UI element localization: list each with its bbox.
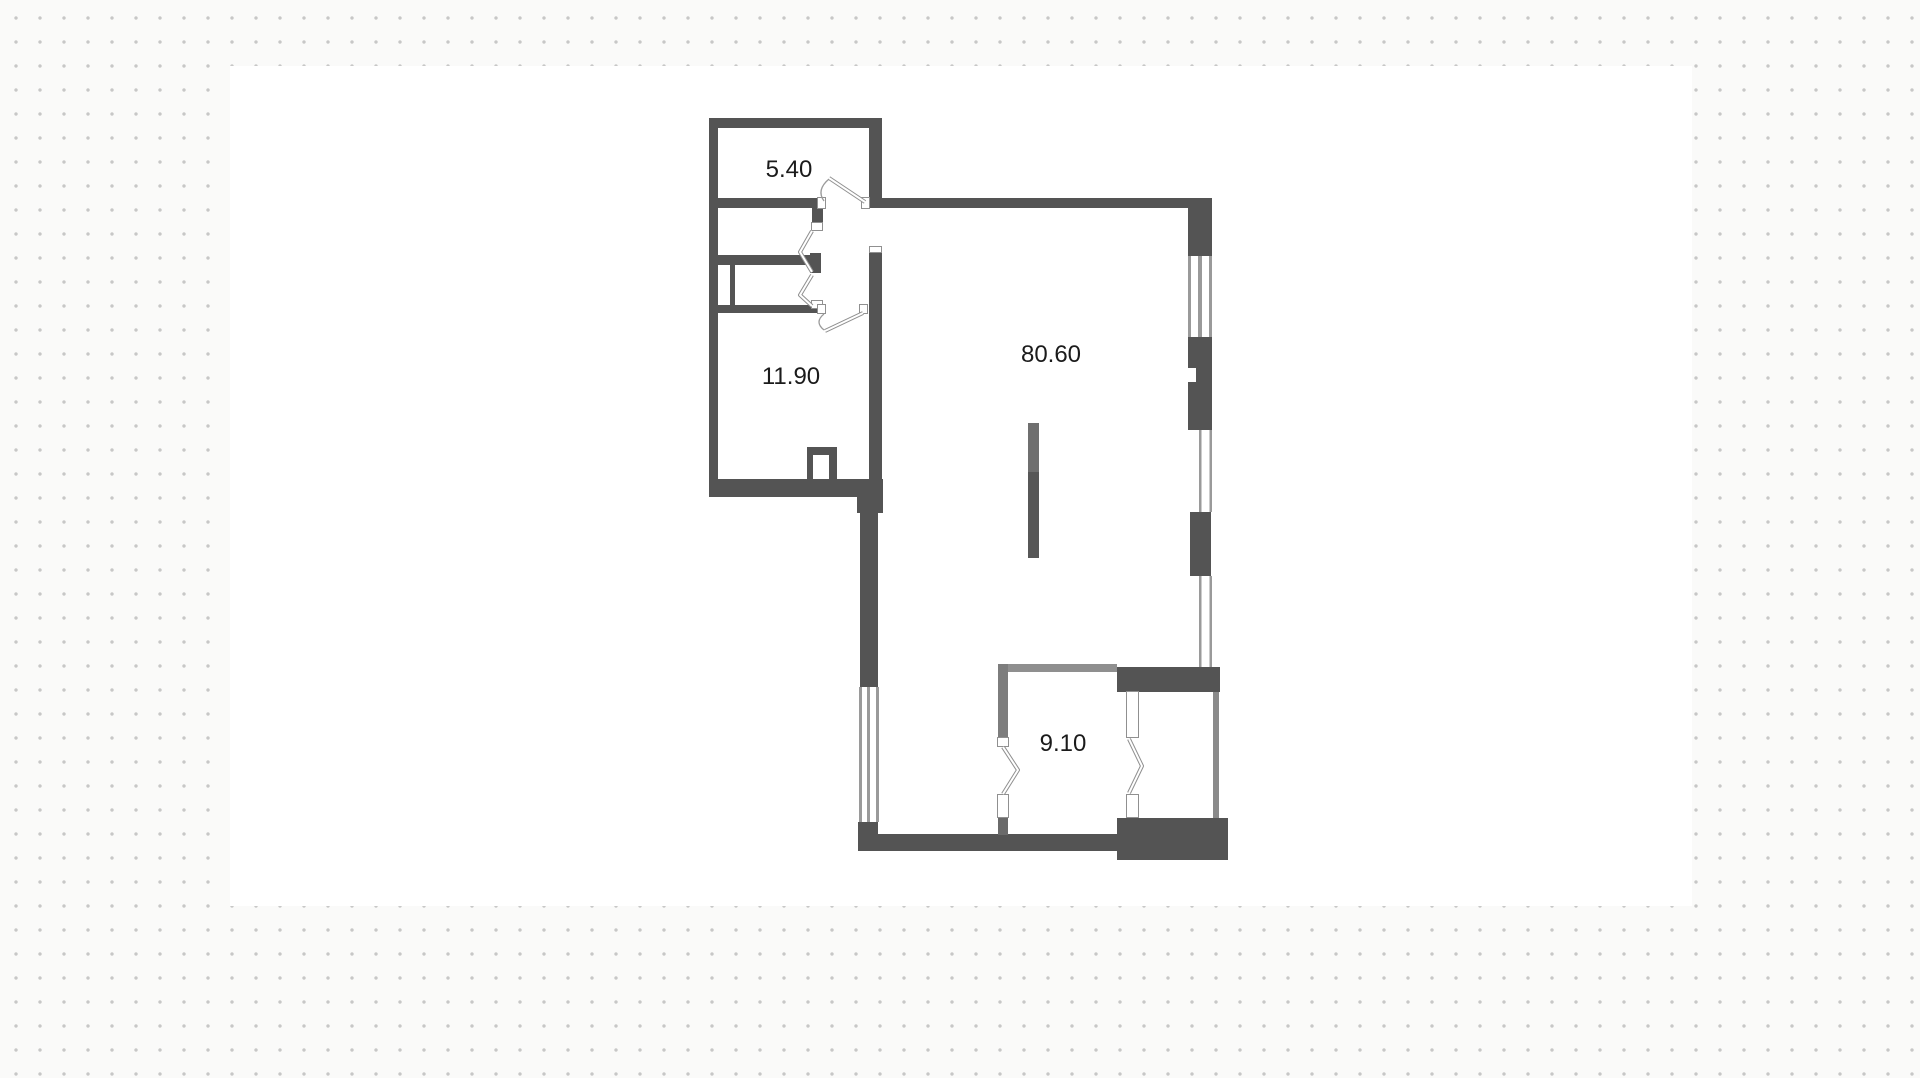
wall-segment [709,479,857,497]
folding-door-icon [1129,739,1142,793]
door-panel [1126,691,1139,738]
wall-segment [709,118,882,128]
floor-plan: 5.40 11.90 80.60 9.10 [0,0,1920,1078]
wall-segment [718,305,825,313]
wall-segment [1190,512,1211,576]
wall-segment [998,664,1008,740]
wall-segment [810,253,821,273]
door-jamb [997,794,1009,818]
wall-segment [863,198,1212,208]
wall-segment [709,118,718,497]
room-area-label: 9.10 [1040,730,1087,758]
door-jamb [861,197,870,209]
wall-segment [998,815,1008,835]
door-jamb [869,246,882,253]
wall-segment [1117,667,1220,692]
door-jamb [859,304,868,314]
wall-segment [858,834,1117,851]
desktop-background: { "plan": { "title": "apartment-floor-pl… [0,0,1920,1078]
door-jamb [811,222,823,231]
wall-segment [1117,818,1228,860]
wall-segment [869,128,882,198]
window-symbol [1199,430,1212,512]
door-swing-arc-icon [819,314,824,330]
door-jamb [817,304,826,314]
wall-segment [869,252,882,513]
window-symbol [1188,256,1212,337]
door-leaf-icon [825,313,863,331]
room-area-label: 80.60 [1021,341,1081,369]
wall-segment [1188,198,1212,256]
wall-segment [857,479,883,513]
wall-niche [1188,368,1196,382]
door-symbols-overlay [0,0,1920,1078]
door-leaf-icon [829,178,865,202]
built-in-cabinet [1028,423,1039,472]
wall-segment [1213,692,1219,818]
folding-door-icon [1003,747,1018,794]
built-in-cabinet [1028,472,1039,558]
folding-door-icon [1129,739,1142,793]
wall-segment [998,664,1117,672]
window-symbol [859,687,879,822]
wall-segment [1188,337,1212,430]
door-jamb [997,737,1009,747]
door-jamb [817,197,826,209]
folding-door-icon [1003,747,1018,794]
door-panel [1126,794,1139,818]
wall-segment [860,513,878,687]
window-symbol [1199,576,1212,667]
wall-segment [709,198,818,208]
vent-shaft-opening [813,455,829,479]
room-area-label: 11.90 [762,363,820,391]
door-leaf-icon [825,313,863,331]
wall-segment [718,255,820,265]
door-leaf-icon [829,178,865,202]
wall-segment [730,265,735,305]
room-area-label: 5.40 [766,156,813,184]
